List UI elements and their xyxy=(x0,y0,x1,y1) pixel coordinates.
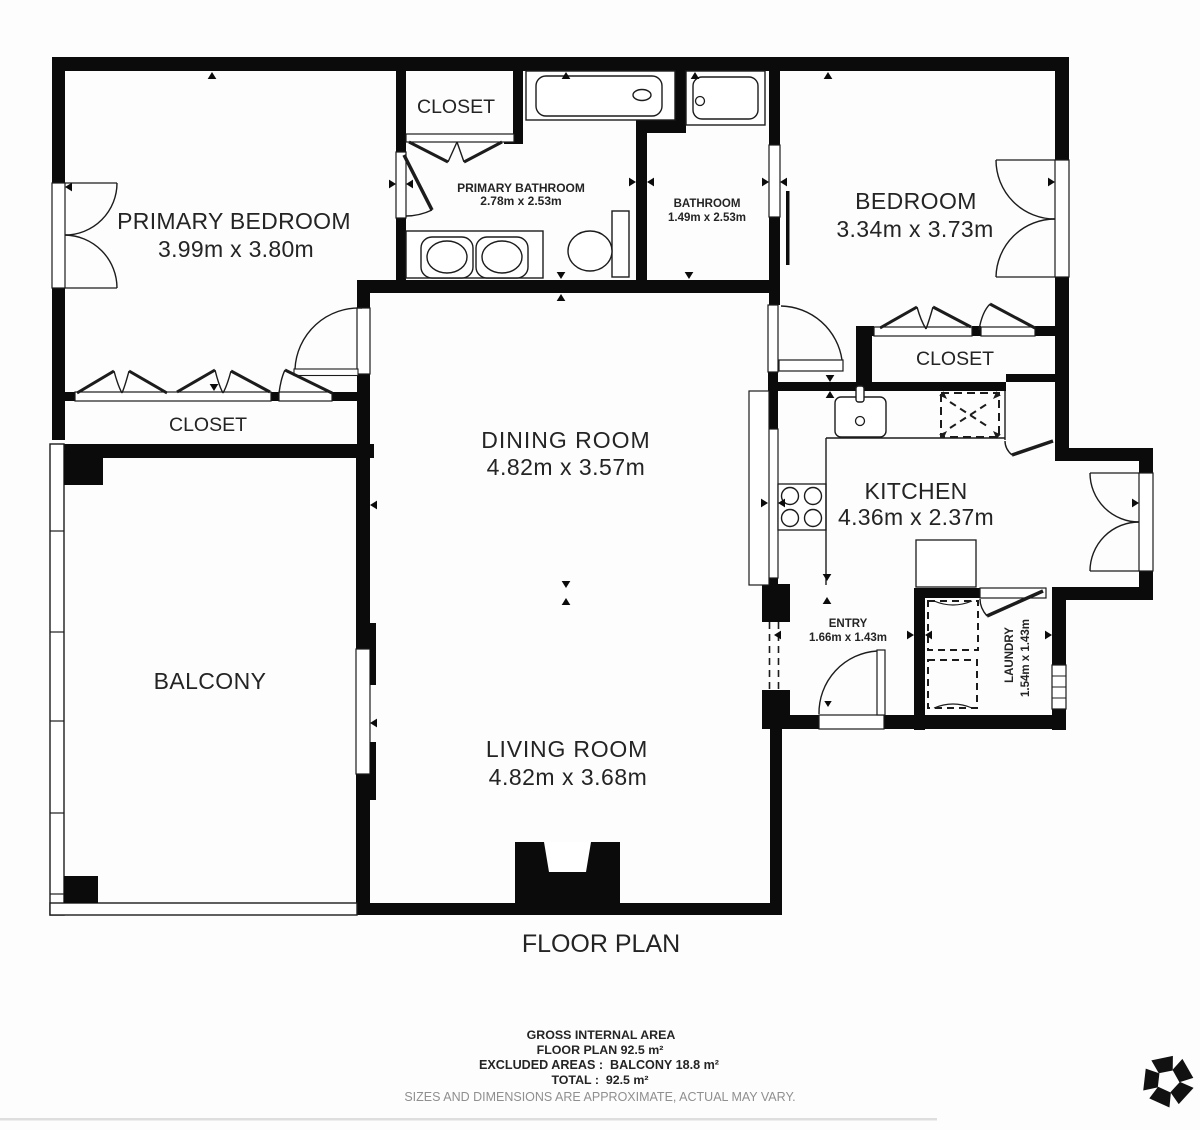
svg-text:2.78m x 2.53m: 2.78m x 2.53m xyxy=(480,194,561,208)
svg-text:1.66m x 1.43m: 1.66m x 1.43m xyxy=(809,632,887,644)
svg-text:LIVING ROOM: LIVING ROOM xyxy=(486,736,648,762)
svg-text:BEDROOM: BEDROOM xyxy=(855,188,977,214)
svg-text:4.36m x 2.37m: 4.36m x 2.37m xyxy=(838,504,994,530)
svg-text:CLOSET: CLOSET xyxy=(916,348,994,370)
svg-text:EXCLUDED AREAS : BALCONY 18.8: EXCLUDED AREAS : BALCONY 18.8 m² xyxy=(479,1058,719,1072)
svg-text:FLOOR PLAN: FLOOR PLAN xyxy=(522,930,680,958)
svg-text:4.82m x 3.57m: 4.82m x 3.57m xyxy=(487,454,646,480)
svg-text:GROSS INTERNAL AREA: GROSS INTERNAL AREA xyxy=(527,1028,676,1042)
svg-text:ENTRY: ENTRY xyxy=(829,618,868,630)
svg-text:DINING ROOM: DINING ROOM xyxy=(481,427,650,453)
svg-text:4.82m x 3.68m: 4.82m x 3.68m xyxy=(489,764,648,790)
svg-text:CLOSET: CLOSET xyxy=(169,414,247,436)
svg-text:1.49m x 2.53m: 1.49m x 2.53m xyxy=(668,212,746,224)
svg-text:3.99m x 3.80m: 3.99m x 3.80m xyxy=(158,236,314,262)
svg-text:CLOSET: CLOSET xyxy=(417,96,495,118)
svg-text:TOTAL : 92.5 m²: TOTAL : 92.5 m² xyxy=(551,1073,648,1087)
svg-text:SIZES AND DIMENSIONS ARE APPRO: SIZES AND DIMENSIONS ARE APPROXIMATE, AC… xyxy=(404,1090,795,1104)
svg-text:FLOOR PLAN 92.5 m²: FLOOR PLAN 92.5 m² xyxy=(537,1043,664,1057)
svg-text:BALCONY: BALCONY xyxy=(154,668,267,694)
svg-text:KITCHEN: KITCHEN xyxy=(864,478,967,504)
svg-text:LAUNDRY: LAUNDRY xyxy=(1004,627,1016,683)
svg-text:1.54m x 1.43m: 1.54m x 1.43m xyxy=(1020,619,1032,697)
svg-text:PRIMARY BATHROOM: PRIMARY BATHROOM xyxy=(457,181,585,195)
svg-text:3.34m x 3.73m: 3.34m x 3.73m xyxy=(836,216,993,242)
svg-text:PRIMARY BEDROOM: PRIMARY BEDROOM xyxy=(117,208,351,234)
svg-text:BATHROOM: BATHROOM xyxy=(674,198,741,210)
